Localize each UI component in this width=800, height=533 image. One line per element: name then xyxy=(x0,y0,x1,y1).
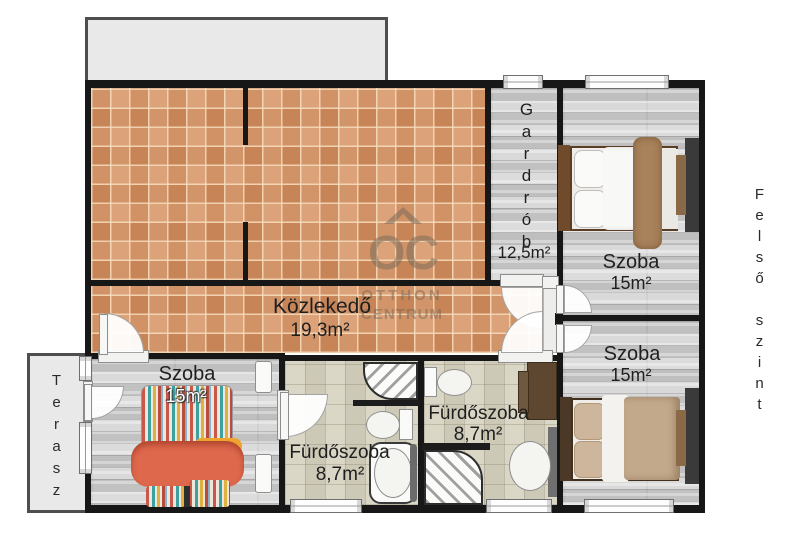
wall xyxy=(699,80,705,513)
window xyxy=(486,499,552,513)
room-label-gardrob: Gardrób xyxy=(513,100,535,240)
door-leaf xyxy=(84,384,92,421)
wardrobe-icon xyxy=(685,388,699,484)
nightstand-icon xyxy=(255,454,272,493)
wall xyxy=(563,315,705,321)
window xyxy=(503,75,543,89)
door-leaf xyxy=(556,285,564,314)
toilet-bowl-icon xyxy=(437,369,472,396)
pillow-icon xyxy=(574,441,605,478)
room-label-kozlekedo: Közlekedő xyxy=(252,296,392,318)
pillow-icon xyxy=(574,190,606,228)
bed-foot-cushion xyxy=(189,480,230,507)
room-label-furdoszoba-mid: Fürdőszoba xyxy=(426,404,531,424)
window xyxy=(290,499,362,513)
bed-gap xyxy=(184,486,190,507)
wall xyxy=(279,353,285,391)
door-leaf xyxy=(99,314,108,355)
window xyxy=(79,422,92,474)
room-area-szoba-topright: 15m² xyxy=(600,274,662,293)
wall xyxy=(279,439,285,507)
room-label-furdoszoba-left: Fürdőszoba xyxy=(287,443,392,463)
floor-level-label: Felső szint xyxy=(745,186,767,376)
bed-blanket xyxy=(633,137,662,249)
room-label-szoba-topright: Szoba xyxy=(595,252,667,273)
wall xyxy=(243,88,248,145)
wall xyxy=(147,353,282,359)
bed-foot-cushion xyxy=(146,486,186,507)
room-area-szoba-bottomleft: 15m² xyxy=(155,387,217,406)
half-wall xyxy=(353,400,420,406)
wall xyxy=(85,280,563,286)
tv-cabinet-icon xyxy=(685,138,699,232)
wall xyxy=(485,88,491,282)
cabinet-icon xyxy=(527,362,557,420)
wardrobe-icon xyxy=(676,410,686,466)
terrace-label: Terasz xyxy=(44,372,64,500)
room-area-furdoszoba-left: 8,7m² xyxy=(309,465,371,485)
window xyxy=(585,75,669,89)
bathtub-edge xyxy=(410,444,417,502)
wall xyxy=(243,222,248,282)
room-label-szoba-midright: Szoba xyxy=(596,344,668,365)
floor-plan: Terasz xyxy=(0,0,800,533)
room-area-gardrob: 12,5m² xyxy=(494,244,554,262)
nightstand-icon xyxy=(255,361,272,393)
room-area-kozlekedo: 19,3m² xyxy=(270,321,370,341)
bed-headboard xyxy=(558,145,570,231)
room-area-furdoszoba-mid: 8,7m² xyxy=(447,425,509,445)
door-threshold xyxy=(500,274,544,287)
bed-duvet xyxy=(624,397,680,480)
pillow-icon xyxy=(574,150,606,188)
room-label-szoba-bottomleft: Szoba xyxy=(151,364,223,385)
tv-cabinet-icon xyxy=(676,155,686,215)
pillow-icon xyxy=(574,403,605,440)
toilet-bowl-icon xyxy=(366,411,400,439)
window xyxy=(584,499,674,513)
sink-icon xyxy=(509,441,551,491)
toilet-tank-icon xyxy=(399,409,413,440)
wall xyxy=(282,355,500,361)
balcony-area xyxy=(85,17,388,83)
door-leaf xyxy=(280,392,289,440)
window xyxy=(79,356,92,381)
door-leaf xyxy=(556,324,564,353)
watermark-monogram: OC xyxy=(360,226,446,281)
shower-icon xyxy=(424,450,483,505)
toilet-tank-icon xyxy=(424,367,437,397)
room-area-szoba-midright: 15m² xyxy=(600,366,662,385)
